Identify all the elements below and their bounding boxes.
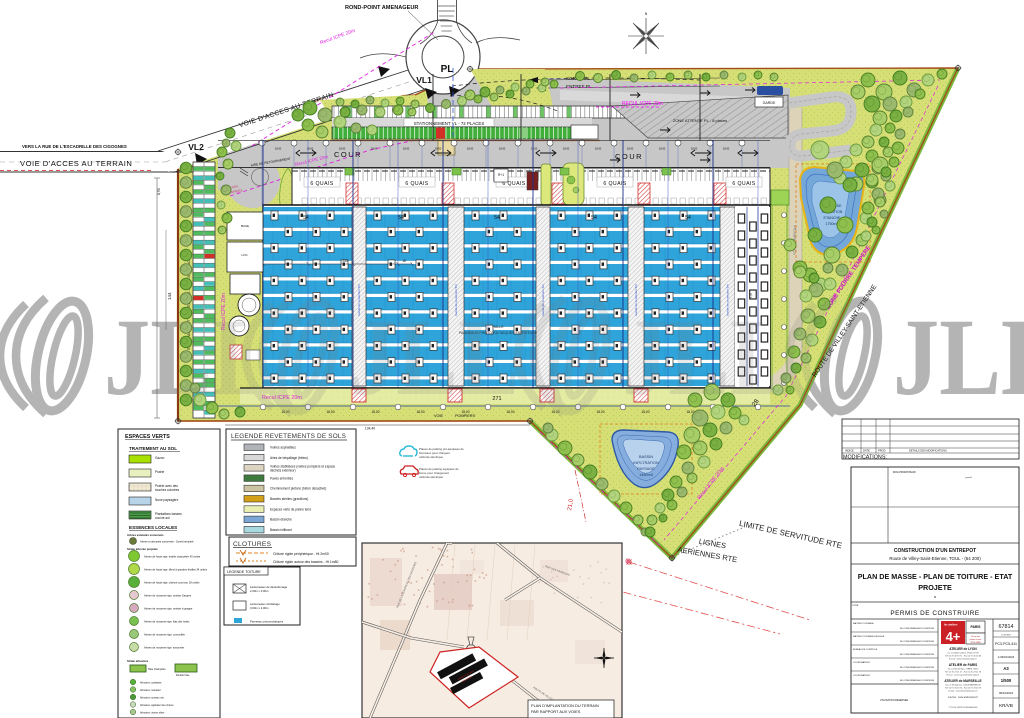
svg-text:Arbustes: noisetier: Arbustes: noisetier	[140, 689, 161, 692]
svg-text:18,00: 18,00	[597, 410, 605, 414]
svg-text:JLL: JLL	[622, 295, 791, 417]
svg-text:COORDINATEUR: COORDINATEUR	[853, 674, 870, 677]
svg-text:A 09/10/2024: A 09/10/2024	[998, 655, 1015, 659]
svg-text:18,00: 18,00	[435, 147, 442, 151]
svg-text:Espaces verts de pleine terre: Espaces verts de pleine terre	[270, 507, 312, 511]
svg-text:18,00: 18,00	[659, 147, 666, 151]
svg-text:Arbres de moyenne tige: savonn: Arbres de moyenne tige: savonnier	[144, 646, 184, 650]
svg-text:ETANCHE: ETANCHE	[824, 216, 842, 220]
svg-text:18,00: 18,00	[595, 147, 602, 151]
svg-text:18,00: 18,00	[691, 147, 698, 151]
svg-text:COORDINATEUR: COORDINATEUR	[853, 661, 870, 664]
svg-text:VOIE D'ACCES AU TERRAIN: VOIE D'ACCES AU TERRAIN	[20, 159, 132, 168]
svg-text:SE CONFORMER AUX COTATIONS: SE CONFORMER AUX COTATIONS	[900, 640, 935, 643]
svg-text:Bassin étanche: Bassin étanche	[270, 518, 292, 522]
svg-text:LEGENDE REVETEMENTS DE SOLS: LEGENDE REVETEMENTS DE SOLS	[231, 433, 346, 440]
svg-text:DATE: DATE	[863, 449, 870, 453]
svg-text:SE CONFORMER AUX COTATIONS: SE CONFORMER AUX COTATIONS	[900, 679, 935, 682]
svg-text:SE CONFORMER AUX COTATIONS: SE CONFORMER AUX COTATIONS	[900, 627, 935, 630]
svg-text:petites écuries: petites écuries	[970, 638, 982, 641]
svg-text:PROJETE: PROJETE	[918, 583, 952, 592]
svg-text:6 QUAIS: 6 QUAIS	[732, 181, 755, 187]
svg-text:Tél: 04 72 40 93 71 - Fax 04 7: Tél: 04 72 40 93 71 - Fax 04 72 40 04 08	[945, 656, 982, 658]
svg-text:Gazon: Gazon	[155, 456, 165, 460]
svg-text:Tél: 04 91 33 00 70 - Fax 04 9: Tél: 04 91 33 00 70 - Fax 04 91 33 00 76	[945, 688, 982, 690]
svg-text:44, rue Montgrand - 13006 MARS: 44, rue Montgrand - 13006 MARSEILLE	[945, 684, 981, 687]
svg-text:INFILTRATION: INFILTRATION	[633, 461, 659, 465]
svg-text:1750m3: 1750m3	[826, 222, 839, 226]
svg-text:ATELIER de LYON: ATELIER de LYON	[949, 647, 977, 651]
svg-text:Route de Villey-Saint-Etienne,: Route de Villey-Saint-Etienne, TOUL - (5…	[889, 556, 981, 561]
svg-text:36 rue des: 36 rue des	[971, 636, 980, 638]
svg-text:18,00: 18,00	[627, 147, 634, 151]
svg-text:DETAILS DES MODIFICATIONS: DETAILS DES MODIFICATIONS	[909, 449, 947, 453]
svg-text:ESSENCES LOCALES: ESSENCES LOCALES	[129, 525, 177, 530]
svg-text:Arbres existants conservés: Arbres existants conservés	[127, 533, 164, 537]
svg-text:Bassin infiltrant: Bassin infiltrant	[270, 528, 292, 532]
svg-text:touches colorées: touches colorées	[155, 488, 180, 492]
svg-text:Arbustes: églantier des chiens: Arbustes: églantier des chiens	[140, 704, 174, 707]
svg-text:INDICE: INDICE	[845, 449, 854, 453]
svg-text:Clôture rigide périphérique -: Clôture rigide périphérique - Ht 2m00	[273, 552, 329, 556]
svg-text:Cheminement piétons (béton dés: Cheminement piétons (béton désactivé)	[270, 487, 326, 491]
svg-text:COUR: COUR	[334, 150, 362, 159]
svg-text:Arbres de moyenne tige: cornou: Arbres de moyenne tige: cornouiller	[144, 633, 185, 637]
svg-text:BASE: BASE	[241, 224, 249, 228]
svg-text:1/500: 1/500	[1001, 678, 1012, 683]
svg-text:18,00: 18,00	[275, 147, 282, 151]
svg-text:PC3-PC5-411: PC3-PC5-411	[995, 642, 1017, 646]
svg-text:18,00: 18,00	[499, 147, 506, 151]
svg-text:09/10/2024: 09/10/2024	[999, 691, 1013, 695]
svg-text:Double haie: Double haie	[176, 674, 190, 677]
svg-text:véhicule électrique: véhicule électrique	[419, 455, 443, 459]
svg-text:E-mail : marseille@ateliersplu: E-mail : marseille@ateliersplus.fr	[948, 690, 978, 693]
svg-text:75010 PARIS: 75010 PARIS	[970, 641, 982, 644]
svg-text:A3: A3	[1003, 666, 1009, 671]
svg-text:R+1: R+1	[498, 173, 504, 177]
svg-text:Clôture rigide autour des bass: Clôture rigide autour des bassins - Ht 1…	[273, 560, 339, 564]
svg-text:PERMIS DE CONSTRUIRE: PERMIS DE CONSTRUIRE	[890, 610, 979, 617]
svg-text:PLAN DE MASSE - PLAN DE TOITUR: PLAN DE MASSE - PLAN DE TOITURE - ETAT	[858, 572, 1013, 581]
svg-text:SE CONFORMER AUX COTATIONS: SE CONFORMER AUX COTATIONS	[900, 653, 935, 656]
svg-text:MOA PROMOTEUR: MOA PROMOTEUR	[893, 471, 916, 474]
svg-text:Voiries asphaltées: Voiries asphaltées	[270, 446, 296, 450]
svg-text:déchets extérieur): déchets extérieur)	[270, 469, 296, 473]
svg-text:54: 54	[591, 215, 597, 221]
svg-text:6 QUAIS: 6 QUAIS	[310, 181, 333, 187]
svg-text:ROND-POINT AMENAGEUR: ROND-POINT AMENAGEUR	[345, 5, 418, 11]
svg-text:134,40: 134,40	[365, 427, 375, 431]
svg-text:4+: 4+	[946, 629, 961, 644]
svg-text:couvre-sol: couvre-sol	[155, 516, 170, 520]
svg-text:BASSIN: BASSIN	[639, 455, 653, 459]
svg-text:54: 54	[398, 215, 404, 221]
svg-text:VL2: VL2	[188, 142, 204, 152]
svg-text:Arbres de moyenne tige: cerisi: Arbres de moyenne tige: cerisier Sargent	[144, 594, 191, 598]
svg-text:KR/VB: KR/VB	[999, 703, 1013, 708]
svg-text:3,00m x 2,00m: 3,00m x 2,00m	[250, 606, 269, 610]
svg-text:PAYSAGE: PAYSAGE	[637, 467, 655, 471]
svg-text:Haie champêtre: Haie champêtre	[148, 668, 166, 671]
svg-text:6 QUAIS: 6 QUAIS	[405, 181, 428, 187]
svg-text:Noue paysagère: Noue paysagère	[155, 498, 179, 502]
svg-text:Aires de béquillage (béton): Aires de béquillage (béton)	[270, 456, 308, 460]
svg-text:Prairie: Prairie	[155, 470, 164, 474]
svg-text:SE CONFORMER AUX COTATIONS: SE CONFORMER AUX COTATIONS	[900, 666, 935, 669]
svg-text:Arbres et arbustes conservés -: Arbres et arbustes conservés - Sovéd tem…	[140, 540, 194, 544]
svg-text:VL1: VL1	[416, 75, 432, 85]
svg-text:PAR RAPPORT AUX VOIES: PAR RAPPORT AUX VOIES	[531, 709, 581, 714]
svg-text:18,00: 18,00	[531, 147, 538, 151]
svg-text:LOC.: LOC.	[241, 253, 248, 257]
svg-text:PL: PL	[441, 64, 454, 75]
svg-text:les ateliers: les ateliers	[944, 623, 958, 627]
svg-text:ATELIER de PARIS: ATELIER de PARIS	[949, 663, 977, 667]
svg-text:21, rue Bellecordière, 69002 L: 21, rue Bellecordière, 69002 LYON	[948, 653, 980, 655]
svg-text:véhicule électrique: véhicule électrique	[419, 475, 443, 479]
svg-text:Arbustes: cotéastre: Arbustes: cotéastre	[140, 682, 162, 685]
svg-text:N° AFFAIRE: N° AFFAIRE	[1001, 634, 1012, 637]
svg-text:Strate arborée projetée: Strate arborée projetée	[127, 547, 158, 551]
svg-text:Arbres de haute tige: charme c: Arbres de haute tige: charme commun 18 u…	[144, 581, 200, 585]
svg-text:1480m3: 1480m3	[639, 473, 653, 477]
svg-text:18,00: 18,00	[563, 147, 570, 151]
svg-text:PARIS: PARIS	[970, 625, 981, 629]
svg-text:JLL: JLL	[893, 295, 1024, 417]
svg-text:GARDE: GARDE	[763, 101, 776, 105]
svg-text:2,00m x 3,00m: 2,00m x 3,00m	[250, 589, 269, 593]
svg-text:E-mail : ateliers@ateliersplus: E-mail : ateliers@ateliersplus.fr	[949, 658, 977, 661]
svg-text:PROD: PROD	[878, 449, 886, 453]
svg-text:UTILISATION RESERVEE: UTILISATION RESERVEE	[880, 699, 909, 702]
svg-text:internet : www.ateliersplus.fr: internet : www.ateliersplus.fr	[948, 696, 978, 699]
svg-text:CLOTURES: CLOTURES	[233, 541, 272, 548]
svg-text:Arbres de haute tige: tilleul: Arbres de haute tige: tilleul à grandes …	[144, 568, 208, 572]
svg-text:ESPACES VERTS: ESPACES VERTS	[125, 434, 170, 440]
svg-text:VERS LA RUE DE L'ESCADRILLE DE: VERS LA RUE DE L'ESCADRILLE DES CIGOGNES	[22, 144, 127, 149]
svg-text:PLAN D'IMPLANTATION DU TERRAIN: PLAN D'IMPLANTATION DU TERRAIN	[531, 703, 599, 708]
svg-text:67814: 67814	[999, 624, 1014, 630]
svg-text:Arbustes: sureau noir: Arbustes: sureau noir	[140, 697, 164, 700]
svg-text:MAITRE D'OUVRAGE DELEGUE: MAITRE D'OUVRAGE DELEGUE	[853, 635, 885, 638]
svg-text:18,00: 18,00	[327, 410, 335, 414]
svg-text:TITRE: TITRE	[852, 605, 859, 607]
svg-text:RECUL ICPE 20m: RECUL ICPE 20m	[622, 101, 663, 107]
svg-text:CONSTRUCTION D'UN ENTREPOT: CONSTRUCTION D'UN ENTREPOT	[894, 548, 976, 554]
svg-text:TRAITEMENT AU SOL: TRAITEMENT AU SOL	[129, 446, 177, 451]
svg-text:MODIFICATIONS:: MODIFICATIONS:	[843, 455, 887, 461]
svg-text:240: 240	[342, 259, 348, 263]
svg-text:LEGENDE TOITURE: LEGENDE TOITURE	[227, 570, 261, 574]
svg-text:Pavés enherbés: Pavés enherbés	[270, 476, 293, 480]
svg-text:18: 18	[402, 259, 406, 263]
svg-text:Arbres de moyenne tige: lilas: Arbres de moyenne tige: lilas des Indes	[144, 620, 190, 624]
svg-text:Arbres de moyenne tige: cerisi: Arbres de moyenne tige: cerisier à grapp…	[144, 607, 193, 611]
svg-text:Tél: 01 45 23 21 27 - Fax 01 4: Tél: 01 45 23 21 27 - Fax 01 45 23 21 78	[945, 672, 982, 674]
svg-text:E-mail : contact-paris@atelier: E-mail : contact-paris@ateliersplus.fr	[947, 674, 980, 677]
svg-text:Arbres de haute tige: érable c: Arbres de haute tige: érable champêtre 4…	[144, 555, 201, 559]
svg-text:18,00: 18,00	[371, 147, 378, 151]
svg-text:16, rue Martel logis - PARIS 7: 16, rue Martel logis - PARIS 75010	[948, 668, 980, 671]
svg-text:18,00: 18,00	[723, 147, 730, 151]
svg-text:Panneaux photovoltaïques: Panneaux photovoltaïques	[250, 620, 284, 624]
svg-text:JLL: JLL	[350, 295, 519, 417]
svg-text:18,00: 18,00	[467, 147, 474, 151]
svg-text:MAITRE D'OUVRAGE: MAITRE D'OUVRAGE	[853, 622, 874, 625]
svg-text:54: 54	[685, 215, 691, 221]
svg-text:Arbustes: viorne obier: Arbustes: viorne obier	[140, 712, 164, 715]
svg-text:18,00: 18,00	[403, 147, 410, 151]
svg-text:8,90: 8,90	[157, 188, 161, 195]
svg-text:ENTREE PL: ENTREE PL	[566, 84, 592, 89]
svg-text:Bandes stériles (gravillons): Bandes stériles (gravillons)	[270, 497, 308, 501]
svg-text:STATIONNEMENT VL - 72 PLACES: STATIONNEMENT VL - 72 PLACES	[414, 121, 485, 126]
svg-text:BUREAU DE CONTROLE: BUREAU DE CONTROLE	[853, 648, 878, 651]
svg-text:©TOUS DROITS RESERVES: ©TOUS DROITS RESERVES	[948, 706, 978, 709]
svg-text:ATELIER de MARSEILLE: ATELIER de MARSEILLE	[944, 679, 981, 683]
svg-text:COUR: COUR	[615, 152, 643, 161]
svg-text:Strate arbustive: Strate arbustive	[127, 659, 149, 663]
svg-text:54: 54	[494, 215, 500, 221]
